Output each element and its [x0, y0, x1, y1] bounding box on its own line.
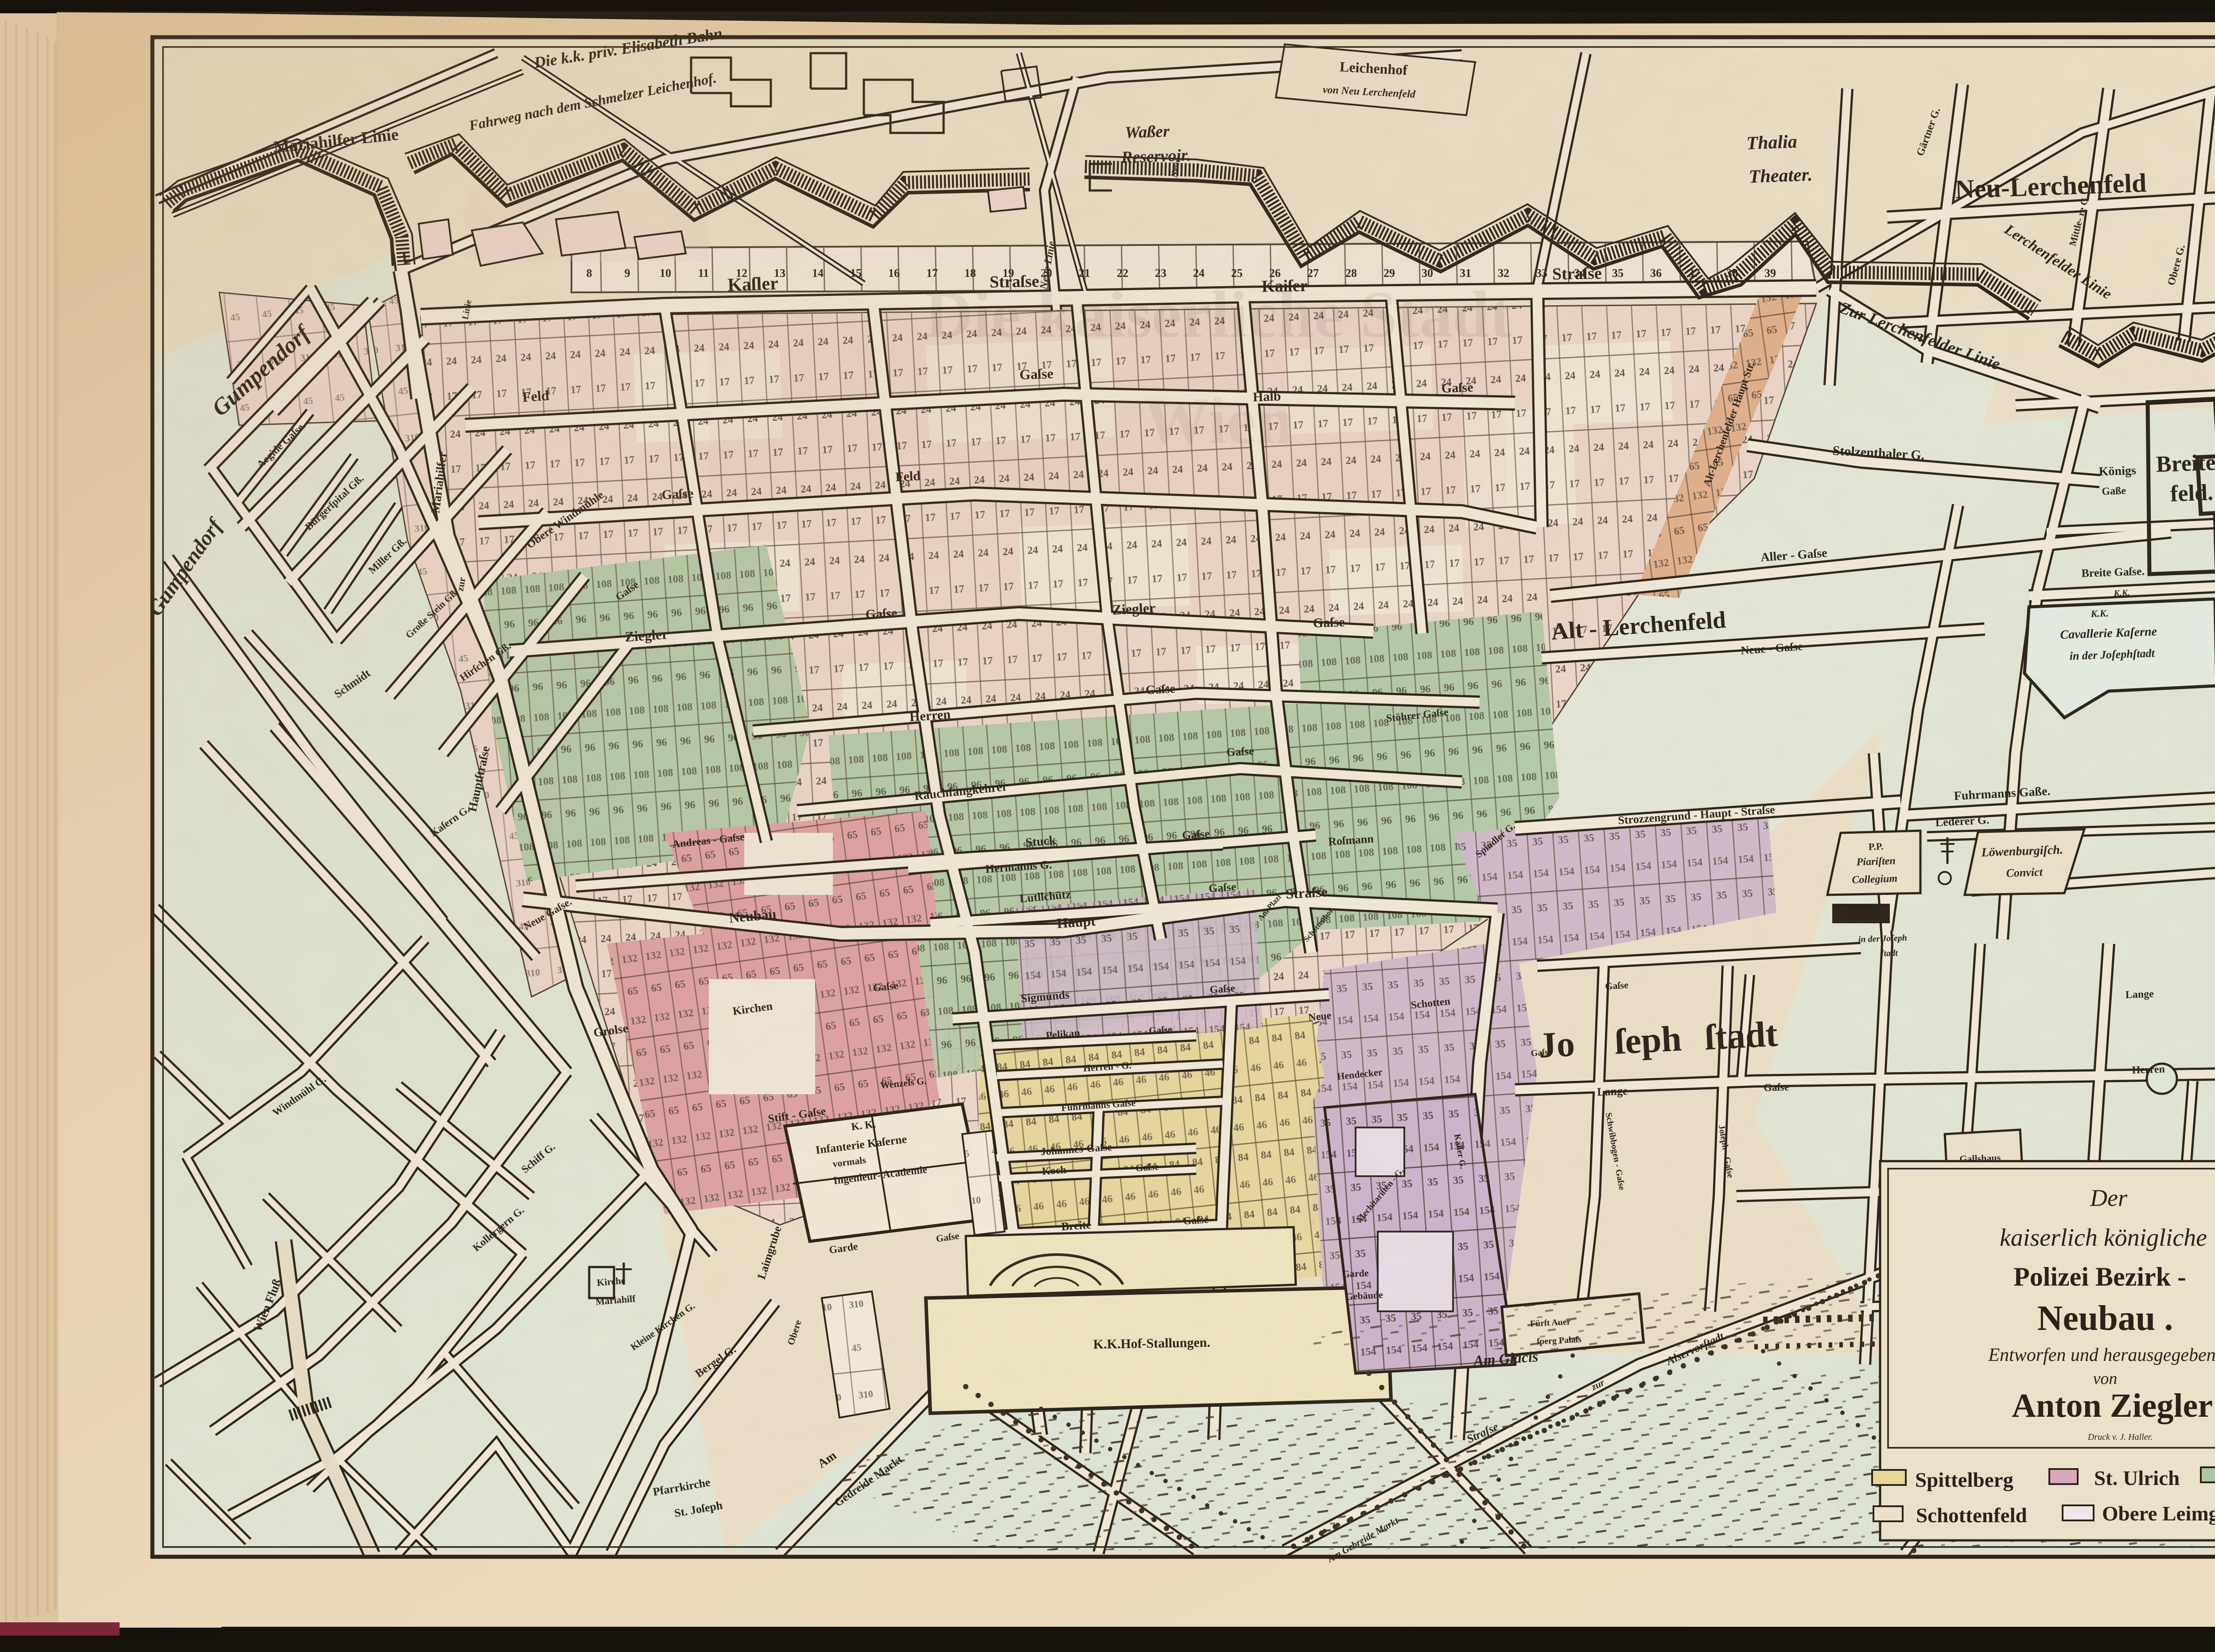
svg-text:Schottenfeld: Schottenfeld: [1916, 1504, 2027, 1527]
svg-text:Entworfen und herausgegeben: Entworfen und herausgegeben: [1988, 1345, 2215, 1365]
svg-text:Neubau .: Neubau .: [2037, 1299, 2173, 1338]
svg-text:kaiserlich königliche: kaiserlich königliche: [2000, 1224, 2207, 1252]
svg-text:Anton Ziegler: Anton Ziegler: [2012, 1387, 2213, 1424]
svg-text:Polizei Bezirk -: Polizei Bezirk -: [2013, 1262, 2186, 1291]
svg-text:von: von: [2093, 1369, 2118, 1388]
svg-text:Der: Der: [2090, 1185, 2128, 1211]
svg-text:St. Ulrich: St. Ulrich: [2094, 1467, 2180, 1490]
svg-text:Spittelberg: Spittelberg: [1915, 1469, 2013, 1492]
svg-text:Obere Leimgrube: Obere Leimgrube: [2102, 1502, 2215, 1525]
svg-text:Druck v. J. Haller.: Druck v. J. Haller.: [2087, 1432, 2153, 1442]
